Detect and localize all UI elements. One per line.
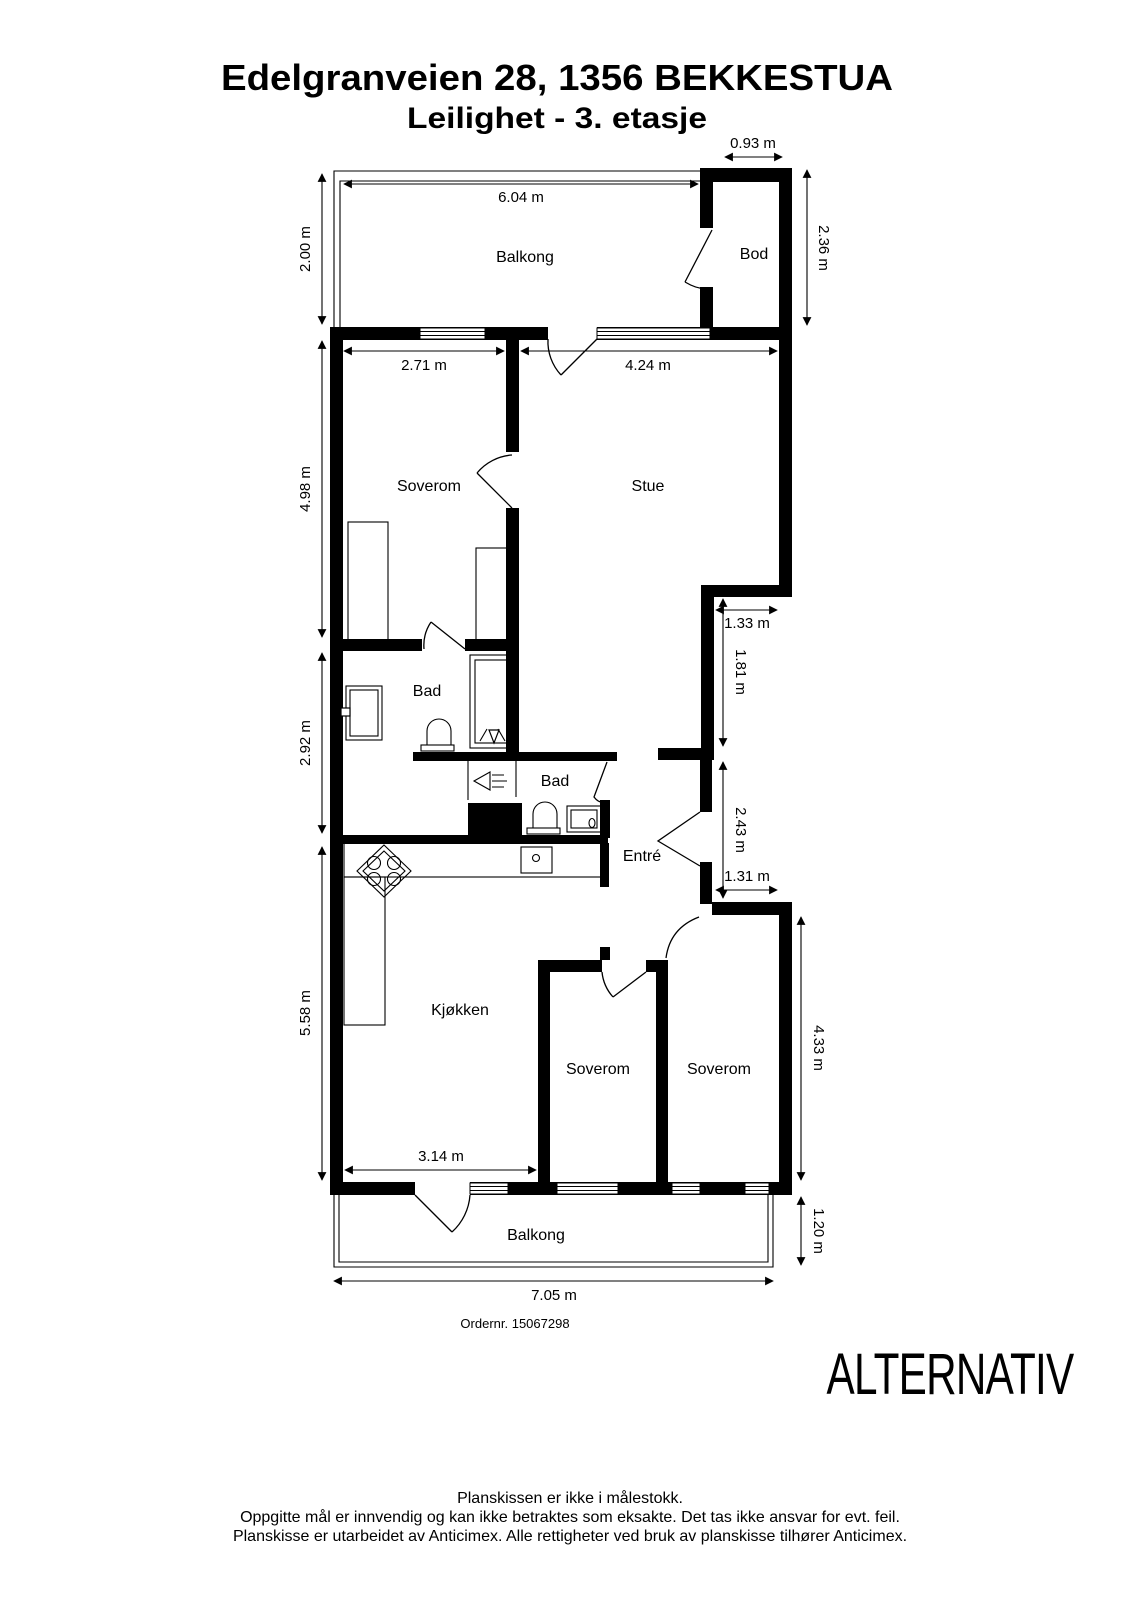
- door-swing-bad-2: [594, 762, 608, 802]
- toilet: [421, 719, 454, 751]
- window: [420, 328, 485, 339]
- toilet: [527, 802, 560, 834]
- room-label-balkong-top: Balkong: [496, 249, 554, 266]
- kitchen-counter: [344, 843, 601, 1025]
- page-title: Edelgranveien 28, 1356 BEKKESTUA: [221, 57, 893, 98]
- dimension-label: 2.00 m: [297, 226, 314, 272]
- room-label-balkong-bottom: Balkong: [507, 1227, 565, 1244]
- room-label-bad-1: Bad: [413, 683, 441, 700]
- door-swing-soverom-3: [666, 917, 699, 958]
- window: [672, 1183, 700, 1194]
- room-label-bad-2: Bad: [541, 773, 569, 790]
- dimension-label: 0.93 m: [730, 135, 776, 152]
- room-label-soverom-2: Soverom: [566, 1061, 630, 1078]
- bathtub: [341, 686, 382, 740]
- room-label-kjokken: Kjøkken: [431, 1002, 489, 1019]
- dimension-label: 2.92 m: [297, 720, 314, 766]
- door-gap-stue-balcony: [548, 326, 597, 341]
- dimension-label: 1.20 m: [810, 1208, 827, 1254]
- door-gap-kitchen-balcony: [415, 1181, 470, 1196]
- shower-stall: [468, 761, 516, 800]
- dimension-label: 2.71 m: [401, 357, 447, 374]
- window: [597, 328, 710, 339]
- dimension-label: 3.14 m: [418, 1148, 464, 1165]
- page-subtitle: Leilighet - 3. etasje: [407, 102, 707, 135]
- dimension-label: 2.36 m: [815, 225, 832, 271]
- room-label-stue: Stue: [632, 478, 665, 495]
- door-swing-bad-1: [424, 622, 465, 649]
- door-swing-bod: [685, 230, 712, 289]
- door-swing-soverom-2: [602, 972, 646, 997]
- disclaimer-line-1: Planskissen er ikke i målestokk.: [457, 1489, 683, 1507]
- shaft: [468, 803, 522, 837]
- disclaimer: Planskissen er ikke i målestokk. Oppgitt…: [233, 1489, 907, 1545]
- header: Edelgranveien 28, 1356 BEKKESTUA Leiligh…: [221, 57, 893, 135]
- dimension-label: 1.33 m: [724, 615, 770, 632]
- dimension-label: 4.98 m: [297, 466, 314, 512]
- room-label-soverom-1: Soverom: [397, 478, 461, 495]
- room-label-entre: Entré: [623, 848, 661, 865]
- door-swing-kitchen-balcony: [415, 1195, 470, 1232]
- window: [470, 1183, 508, 1194]
- wardrobe: [348, 522, 388, 646]
- dimension-label: 4.33 m: [810, 1025, 827, 1071]
- bathroom-sink: [567, 806, 601, 832]
- dimension-label: 6.04 m: [498, 189, 544, 206]
- disclaimer-line-2: Oppgitte mål er innvendig og kan ikke be…: [240, 1508, 900, 1526]
- floorplan-svg: Edelgranveien 28, 1356 BEKKESTUA Leiligh…: [0, 0, 1131, 1600]
- disclaimer-line-3: Planskisse er utarbeidet av Anticimex. A…: [233, 1528, 907, 1545]
- dimension-label: 4.24 m: [625, 357, 671, 374]
- dimension-label: 7.05 m: [531, 1287, 577, 1304]
- order-number: Ordernr. 15067298: [460, 1316, 569, 1331]
- window: [745, 1183, 769, 1194]
- dimension-label: 1.81 m: [732, 649, 749, 695]
- room-label-bod: Bod: [740, 246, 768, 263]
- dimension-label: 5.58 m: [297, 990, 314, 1036]
- kitchen-sink: [521, 847, 552, 873]
- window: [557, 1183, 618, 1194]
- door-swing-stue-balcony: [548, 339, 597, 375]
- floorplan-page: Edelgranveien 28, 1356 BEKKESTUA Leiligh…: [0, 0, 1131, 1600]
- dimension-label: 1.31 m: [724, 868, 770, 885]
- alternative-watermark: ALTERNATIV: [827, 1342, 1075, 1407]
- room-label-soverom-3: Soverom: [687, 1061, 751, 1078]
- dimensions: 0.93 m 6.04 m 2.00 m 2.36 m 2.71 m 4.24 …: [297, 135, 832, 1304]
- dimension-label: 2.43 m: [732, 807, 749, 853]
- door-swing-soverom-1: [477, 455, 512, 508]
- stove: [357, 845, 411, 897]
- door-swing-entrance: [658, 812, 700, 866]
